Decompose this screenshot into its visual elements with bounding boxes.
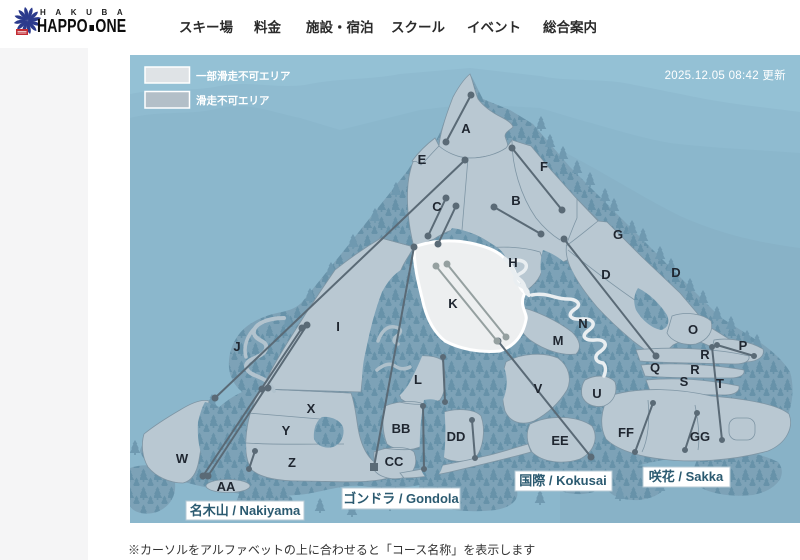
svg-text:C: C: [432, 199, 442, 214]
svg-text:N: N: [578, 316, 587, 331]
svg-text:J: J: [233, 339, 240, 354]
svg-text:国際 / Kokusai: 国際 / Kokusai: [519, 473, 606, 488]
svg-text:B: B: [511, 193, 520, 208]
svg-text:D: D: [601, 267, 610, 282]
svg-text:CC: CC: [385, 454, 404, 469]
svg-text:G: G: [613, 227, 623, 242]
svg-text:S: S: [680, 374, 689, 389]
svg-text:R: R: [700, 347, 710, 362]
svg-text:FF: FF: [618, 425, 634, 440]
svg-text:R: R: [690, 362, 700, 377]
svg-text:Y: Y: [282, 423, 291, 438]
svg-text:A: A: [461, 121, 471, 136]
svg-text:T: T: [716, 376, 724, 391]
svg-text:W: W: [176, 451, 189, 466]
svg-text:AA: AA: [217, 479, 236, 494]
svg-text:P: P: [739, 338, 748, 353]
svg-text:E: E: [418, 152, 427, 167]
svg-text:Q: Q: [650, 360, 660, 375]
svg-text:BB: BB: [392, 421, 411, 436]
svg-text:DD: DD: [447, 429, 466, 444]
svg-text:U: U: [592, 386, 601, 401]
svg-text:F: F: [540, 159, 548, 174]
svg-text:L: L: [414, 372, 422, 387]
svg-text:咲花 / Sakka: 咲花 / Sakka: [649, 469, 724, 484]
svg-text:ゴンドラ / Gondola: ゴンドラ / Gondola: [343, 491, 459, 506]
svg-text:一部滑走不可エリア: 一部滑走不可エリア: [196, 70, 291, 83]
svg-text:GG: GG: [690, 429, 710, 444]
svg-text:M: M: [553, 333, 564, 348]
svg-text:O: O: [688, 322, 698, 337]
svg-text:I: I: [336, 319, 340, 334]
svg-text:Z: Z: [288, 455, 296, 470]
svg-text:K: K: [448, 296, 458, 311]
svg-text:2025.12.05 08:42 更新: 2025.12.05 08:42 更新: [665, 68, 787, 82]
svg-text:H: H: [508, 255, 517, 270]
svg-text:X: X: [307, 401, 316, 416]
svg-text:D: D: [671, 265, 680, 280]
svg-text:名木山 / Nakiyama: 名木山 / Nakiyama: [190, 503, 301, 518]
svg-text:V: V: [534, 381, 543, 396]
svg-text:EE: EE: [551, 433, 569, 448]
svg-text:滑走不可エリア: 滑走不可エリア: [196, 94, 270, 107]
